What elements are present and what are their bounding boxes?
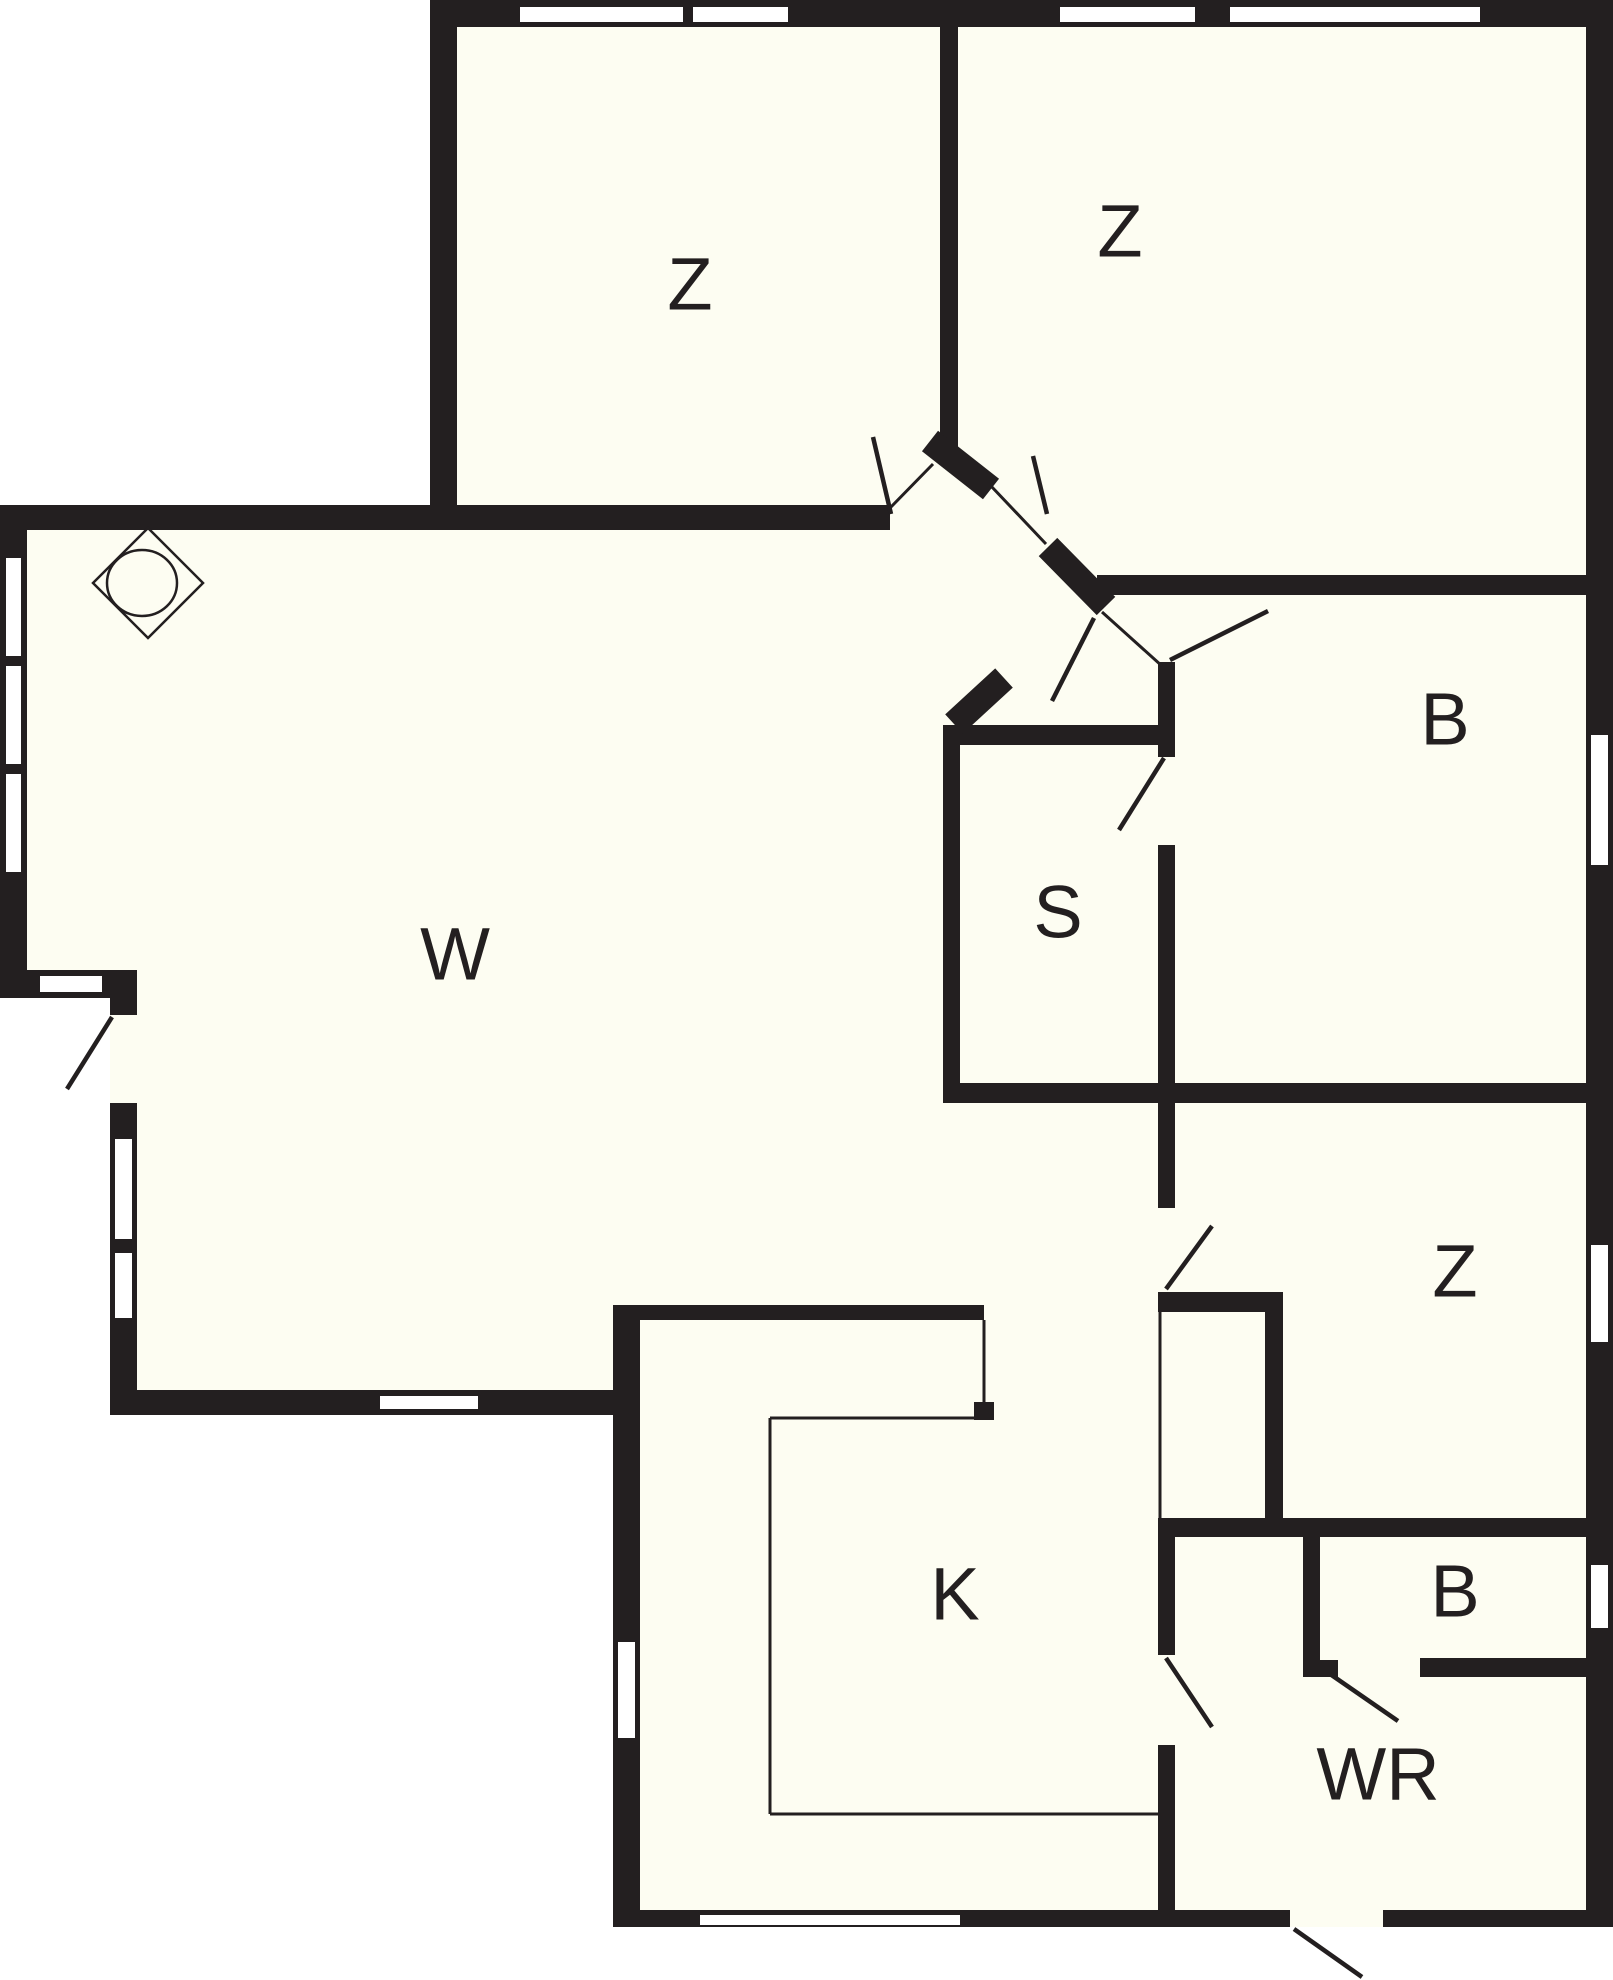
floor-plan-canvas: ZZWSBZKBWR [0,0,1613,1980]
window-top-2-icon [693,7,788,22]
window-left-3-icon [6,774,21,872]
floor-plan: ZZWSBZKBWR [0,0,1613,1980]
sauna-top-wall [943,725,1175,745]
utility-left-wall-a [1158,1537,1175,1655]
utility-left-wall-b [1158,1745,1175,1910]
living-top-wall [0,505,890,530]
window-right-1-icon [1591,735,1608,865]
window-bottom-icon [700,1915,960,1925]
window-top-4-icon [1230,7,1480,22]
room-label-bathroom-2: B [1430,1550,1479,1633]
corridor-stub-wall [1158,1292,1283,1312]
kitchen-left-wall [613,1305,640,1927]
window-left-2-icon [6,666,21,764]
room-label-sauna: S [1033,871,1082,954]
room-label-utility-room: WR [1316,1733,1439,1816]
outer-right-wall [1586,0,1613,1927]
bedroom1-left-wall [430,0,457,530]
kitchen-top-wall [613,1305,984,1320]
room-label-bedroom-2: Z [1097,190,1142,273]
corridor-east-wall [1158,1103,1175,1208]
sauna-right-wall-low [1158,845,1175,1100]
bottom-wall-east [1383,1910,1613,1927]
window-lowleft-2-icon [115,1253,132,1318]
window-left-1-icon [6,558,21,656]
bath1-top-wall [1097,575,1613,595]
window-step-icon [40,976,102,992]
room-label-bedroom-1: Z [667,243,712,326]
window-kitchen-w-icon [618,1642,635,1738]
bath2-left-wall [1303,1537,1320,1677]
sauna-right-wall-up [1158,662,1175,757]
closet-right-wall [1265,1312,1283,1523]
window-lowleft-1-icon [115,1139,132,1239]
room-label-kitchen: K [930,1553,979,1636]
room-label-bathroom-1: B [1420,678,1469,761]
room-label-living-room: W [420,913,490,996]
bedroom-divider-wall [940,27,958,447]
window-top-3-icon [1060,7,1195,22]
bath2-bottom-wall [1420,1658,1590,1677]
sauna-bath-bottom-wall [943,1083,1613,1103]
window-living-s-icon [380,1396,478,1409]
window-top-1-icon [520,7,683,22]
window-right-3-icon [1591,1565,1608,1628]
window-right-2-icon [1591,1245,1608,1342]
room-label-bedroom-3: Z [1432,1230,1477,1313]
sauna-left-wall [943,725,960,1100]
living-bottom-wall [110,1390,640,1415]
utility-top-wall [1158,1518,1590,1537]
lowleft-wall-a [110,998,137,1015]
